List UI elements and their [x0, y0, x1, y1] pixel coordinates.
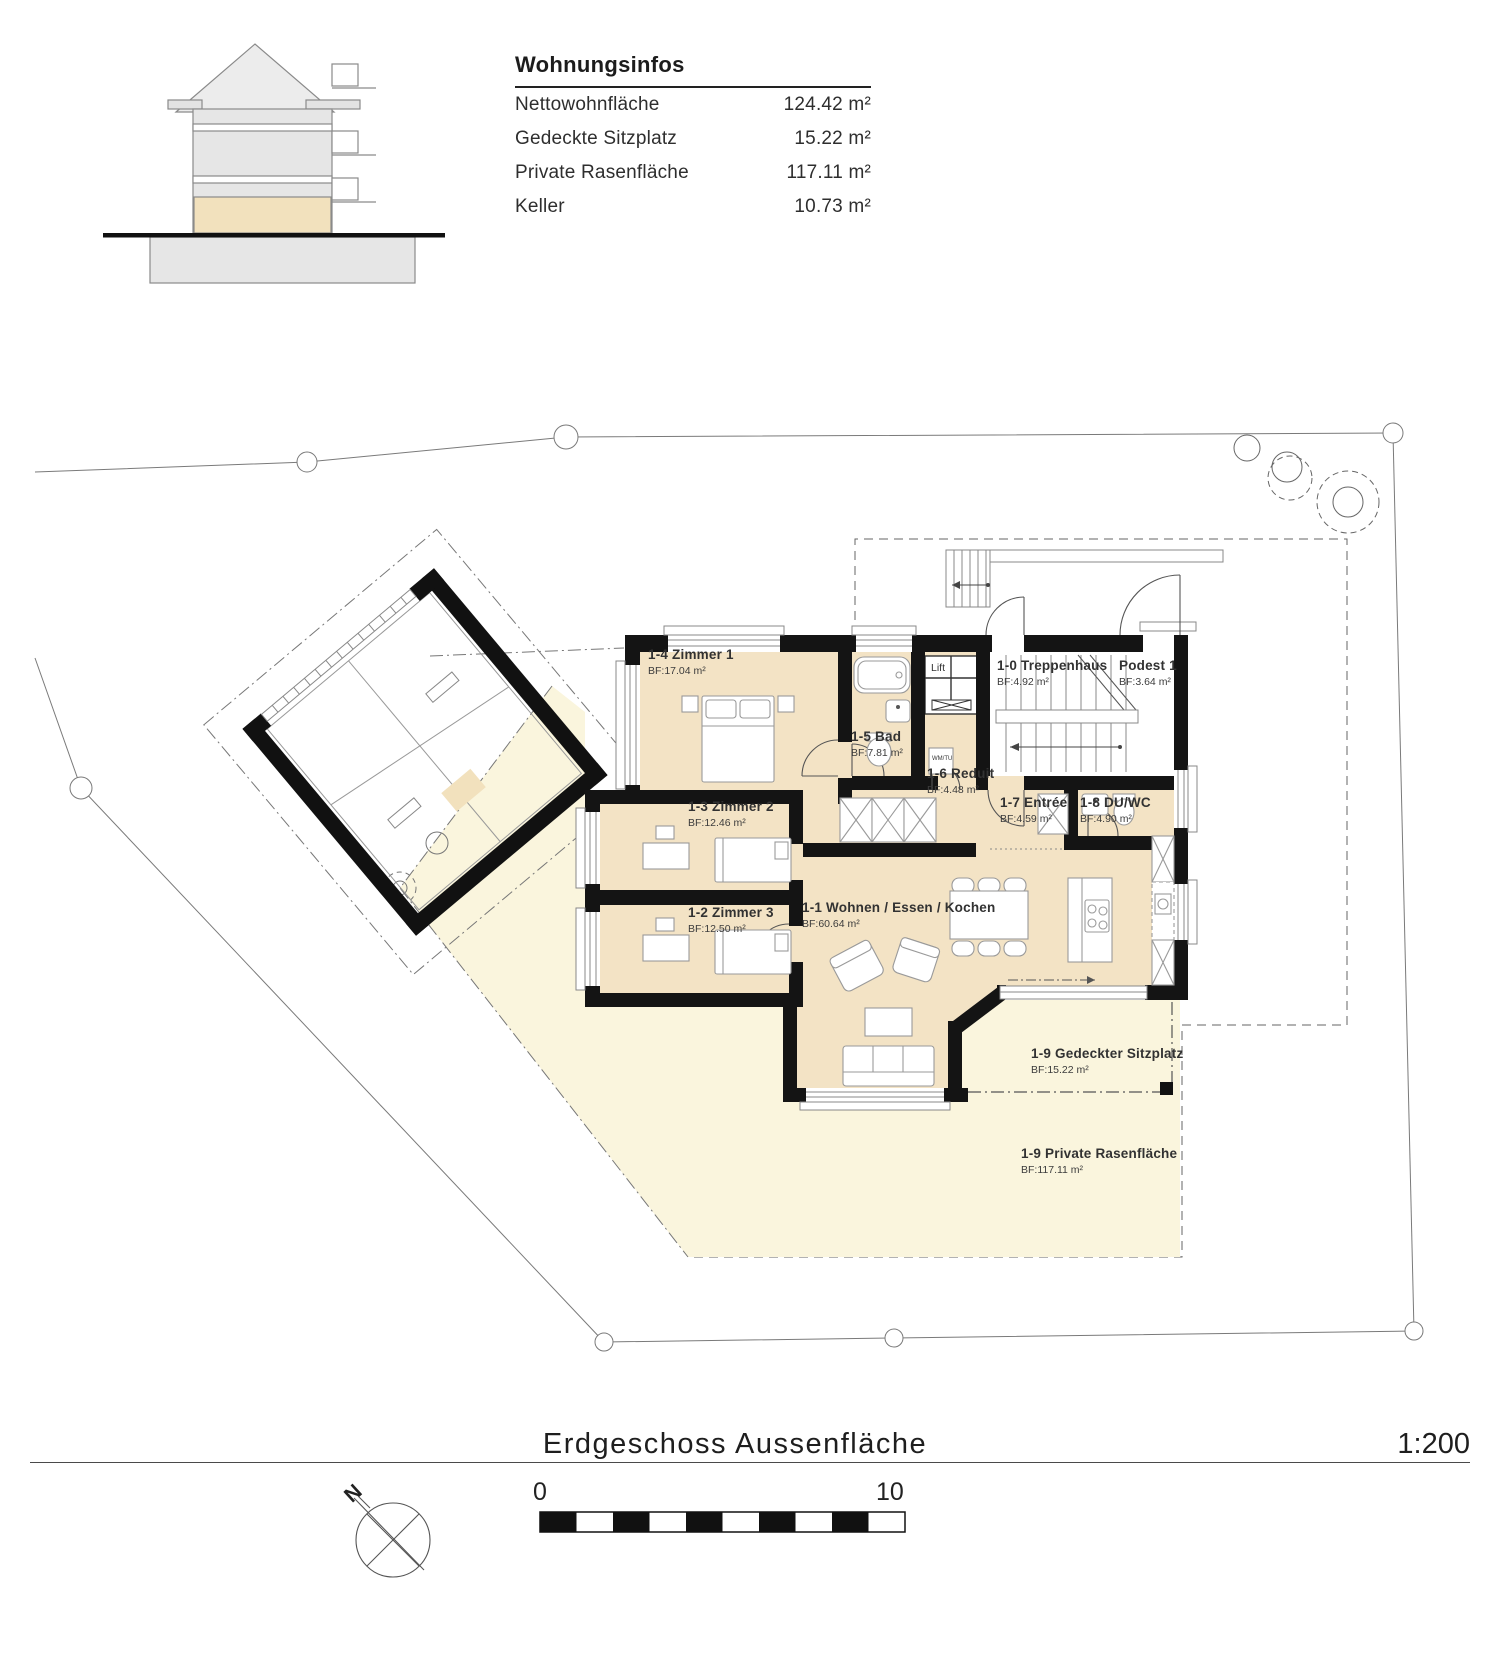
- tree-symbols: [1234, 435, 1379, 533]
- panel-title: Wohnungsinfos: [515, 52, 871, 88]
- site-plan: [0, 0, 1500, 1665]
- info-row: Nettowohnfläche 124.42 m²: [515, 88, 871, 122]
- room-label-zimmer3: 1-2 Zimmer 3 BF:12.50 m²: [688, 905, 774, 935]
- room-label-bad: 1-5 Bad BF:7.81 m²: [851, 729, 903, 759]
- room-label-duwc: 1-8 DU/WC BF:4.90 m²: [1080, 795, 1151, 825]
- room-label-reduit: 1-6 Reduit BF:4.48 m²: [927, 766, 994, 796]
- room-label-entree: 1-7 Entrée BF:4.59 m²: [1000, 795, 1067, 825]
- info-label: Private Rasenfläche: [515, 156, 689, 190]
- info-label: Keller: [515, 190, 565, 224]
- info-value: 10.73 m²: [794, 190, 871, 224]
- info-value: 15.22 m²: [794, 122, 871, 156]
- info-row: Keller 10.73 m²: [515, 190, 871, 224]
- garage-door: [261, 590, 415, 722]
- drawing-scale: 1:200: [1397, 1428, 1470, 1461]
- building-section-icon: [103, 44, 445, 283]
- lift-label: Lift: [931, 662, 945, 674]
- room-label-wohnen: 1-1 Wohnen / Essen / Kochen BF:60.64 m²: [802, 900, 995, 930]
- info-row: Private Rasenfläche 117.11 m²: [515, 156, 871, 190]
- info-label: Gedeckte Sitzplatz: [515, 122, 677, 156]
- room-label-zimmer1: 1-4 Zimmer 1 BF:17.04 m²: [648, 647, 734, 677]
- scale-bar: [540, 1512, 905, 1532]
- title-rule: [30, 1462, 1470, 1463]
- room-label-podest: Podest 1 BF:3.64 m²: [1119, 658, 1177, 688]
- washer-label: WM/TU: [932, 756, 952, 762]
- room-label-sitzplatz: 1-9 Gedeckter Sitzplatz BF:15.22 m²: [1031, 1046, 1183, 1076]
- info-value: 117.11 m²: [786, 156, 871, 190]
- entry-walkway: [946, 550, 1223, 607]
- info-label: Nettowohnfläche: [515, 88, 660, 122]
- room-label-treppenhaus: 1-0 Treppenhaus BF:4.92 m²: [997, 658, 1107, 688]
- room-label-zimmer2: 1-3 Zimmer 2 BF:12.46 m²: [688, 799, 774, 829]
- room-label-rasenflaeche: 1-9 Private Rasenfläche BF:117.11 m²: [1021, 1146, 1177, 1176]
- drawing-title: Erdgeschoss Aussenfläche: [543, 1428, 927, 1461]
- north-compass: [354, 1496, 430, 1577]
- scalebar-end-label: 10: [876, 1478, 904, 1507]
- apartment-info-panel: Wohnungsinfos Nettowohnfläche 124.42 m² …: [515, 52, 871, 224]
- scalebar-start-label: 0: [533, 1478, 547, 1507]
- terrace-corner-point: [1160, 1082, 1173, 1095]
- info-value: 124.42 m²: [784, 88, 871, 122]
- info-row: Gedeckte Sitzplatz 15.22 m²: [515, 122, 871, 156]
- floorplan-sheet: Wohnungsinfos Nettowohnfläche 124.42 m² …: [0, 0, 1500, 1665]
